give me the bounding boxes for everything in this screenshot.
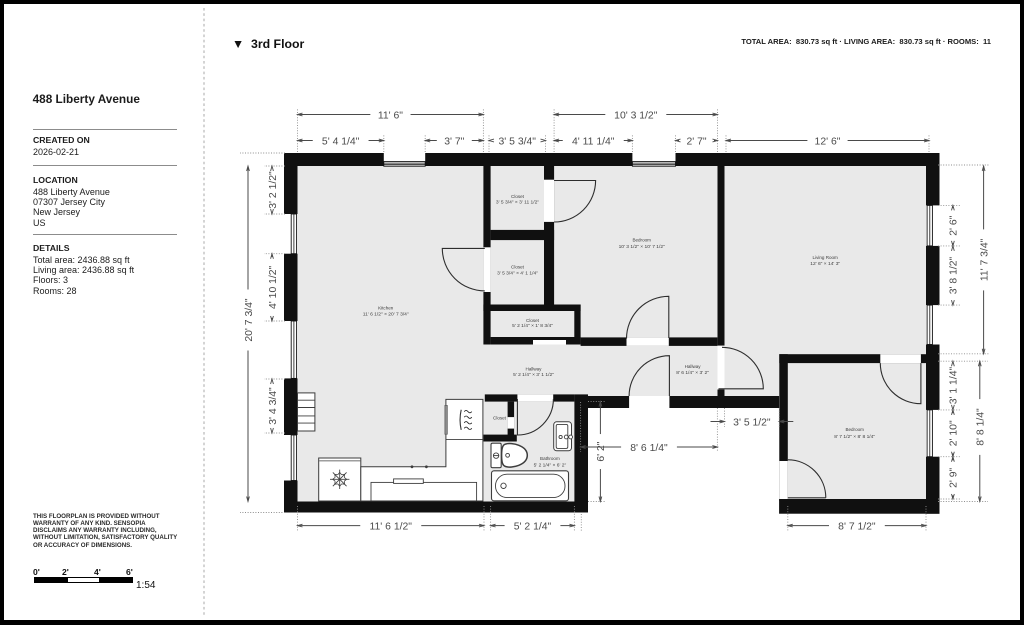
svg-text:Living Room: Living Room: [813, 255, 838, 260]
svg-text:2' 9": 2' 9": [949, 467, 960, 487]
svg-text:3' 5 3/4": 3' 5 3/4": [499, 136, 537, 147]
svg-text:Closet: Closet: [511, 265, 525, 270]
svg-text:5' 2 1/4" × 3' 1 1/2": 5' 2 1/4" × 3' 1 1/2": [513, 372, 554, 378]
svg-text:6' 2": 6' 2": [596, 441, 607, 461]
svg-text:3' 5 3/4" × 4' 1 1/4": 3' 5 3/4" × 4' 1 1/4": [497, 270, 538, 276]
svg-text:8' 6 1/4" × 3' 2": 8' 6 1/4" × 3' 2": [676, 370, 709, 376]
svg-text:11' 6 1/2" × 20' 7 3/4": 11' 6 1/2" × 20' 7 3/4": [363, 312, 409, 318]
svg-text:4' 11 1/4": 4' 11 1/4": [572, 136, 615, 147]
svg-text:3' 4 3/4": 3' 4 3/4": [268, 387, 279, 425]
svg-text:3' 5 1/2": 3' 5 1/2": [733, 417, 771, 428]
svg-text:8' 8 1/4": 8' 8 1/4": [976, 408, 987, 446]
svg-text:Closet: Closet: [526, 318, 540, 323]
svg-text:Hallway: Hallway: [685, 364, 702, 369]
svg-text:20' 7 3/4": 20' 7 3/4": [244, 298, 255, 342]
svg-text:2' 10": 2' 10": [949, 420, 960, 446]
svg-text:Closet: Closet: [493, 416, 507, 421]
svg-text:3' 1 1/4": 3' 1 1/4": [949, 367, 960, 405]
svg-text:4' 10 1/2": 4' 10 1/2": [268, 265, 279, 309]
svg-text:5' 2 1/4": 5' 2 1/4": [514, 521, 552, 532]
svg-text:3' 2 1/2": 3' 2 1/2": [268, 171, 279, 209]
svg-text:5' 4 1/4": 5' 4 1/4": [322, 136, 360, 147]
svg-text:10' 3 1/2": 10' 3 1/2": [614, 110, 658, 121]
svg-text:3' 7": 3' 7": [444, 136, 464, 147]
svg-text:12' 6" × 14' 3": 12' 6" × 14' 3": [810, 261, 840, 267]
svg-text:Bedroom: Bedroom: [845, 427, 864, 432]
svg-text:Bedroom: Bedroom: [632, 238, 651, 243]
svg-text:2' 7": 2' 7": [686, 136, 706, 147]
svg-text:10' 3 1/2" × 10' 7 1/2": 10' 3 1/2" × 10' 7 1/2": [619, 244, 666, 250]
svg-text:11' 6": 11' 6": [378, 110, 403, 121]
svg-text:Closet: Closet: [511, 194, 525, 199]
svg-text:5' 2 1/4" × 6' 2": 5' 2 1/4" × 6' 2": [534, 462, 567, 468]
svg-text:11' 6 1/2": 11' 6 1/2": [370, 521, 413, 532]
svg-text:3' 5 3/4" × 3' 11 1/2": 3' 5 3/4" × 3' 11 1/2": [496, 200, 539, 206]
svg-text:8' 6 1/4": 8' 6 1/4": [630, 443, 668, 454]
svg-text:2' 6": 2' 6": [949, 215, 960, 235]
svg-text:5' 2 1/4" × 1' 8 3/4": 5' 2 1/4" × 1' 8 3/4": [512, 323, 553, 329]
svg-text:8' 7 1/2" × 8' 8 1/4": 8' 7 1/2" × 8' 8 1/4": [834, 434, 875, 440]
svg-text:11' 7 3/4": 11' 7 3/4": [979, 238, 990, 281]
svg-text:3' 8 1/2": 3' 8 1/2": [949, 256, 960, 294]
svg-text:12' 6": 12' 6": [815, 136, 841, 147]
svg-text:Hallway: Hallway: [526, 366, 543, 371]
svg-text:Bathroom: Bathroom: [540, 456, 560, 461]
svg-text:8' 7 1/2": 8' 7 1/2": [838, 521, 876, 532]
svg-text:Kitchen: Kitchen: [378, 305, 394, 310]
